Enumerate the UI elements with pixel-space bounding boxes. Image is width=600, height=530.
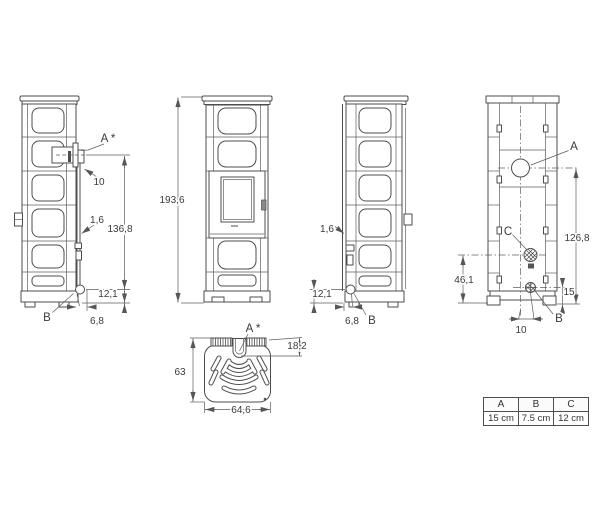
table-header-row: A B C <box>484 398 589 412</box>
dim-panel-thickness: 1,6 <box>90 215 104 226</box>
flue-outlet-label: A <box>570 141 578 153</box>
view-side-right: 1,6 12,1 6,8 B <box>310 96 412 327</box>
top-cap <box>20 96 79 101</box>
view-front: 193,6 <box>159 96 272 303</box>
b-connection <box>76 285 85 294</box>
view-top: A * 18,2 63 64,6 <box>174 323 307 416</box>
dim-total-height: 193,6 <box>159 195 184 206</box>
tile <box>359 245 391 268</box>
service-box <box>76 251 82 260</box>
dim-flue-depth: 18,2 <box>287 341 307 352</box>
flue-outlet-label: A * <box>246 323 261 335</box>
top-vent-grille <box>245 338 266 346</box>
dim-b-offset: 6,8 <box>345 316 359 327</box>
dim-b-height: 12,1 <box>98 289 118 300</box>
top-vent-grille <box>211 338 232 346</box>
base <box>21 291 78 302</box>
dim-c-height: 46,1 <box>454 275 474 286</box>
technical-drawing-canvas: A * 10 1,6 136,8 12,1 6,8 B <box>0 0 600 530</box>
dim-flue-height: 126,8 <box>564 233 589 244</box>
tile <box>218 241 256 269</box>
flue-outlet-label: A * <box>101 133 116 145</box>
service-box <box>346 245 354 251</box>
dim-b-offset: 6,8 <box>90 316 104 327</box>
door-glass <box>221 177 254 222</box>
top-cap <box>486 96 559 103</box>
dim-b-offset: 10 <box>515 325 527 336</box>
service-box <box>347 255 353 265</box>
service-box <box>528 264 534 269</box>
service-box <box>75 243 82 249</box>
b-connection <box>346 285 355 294</box>
bottom-vent-slot <box>359 276 391 286</box>
tile <box>359 108 391 133</box>
pin-mark <box>264 398 267 401</box>
view-rear: A C B 126,8 46,1 15 10 <box>454 96 590 336</box>
table-header-b: B <box>519 398 554 412</box>
tile <box>359 175 391 201</box>
dim-b-height: 12,1 <box>312 289 332 300</box>
table-value-a: 15 cm <box>484 412 519 426</box>
view-side-left: A * 10 1,6 136,8 12,1 6,8 B <box>15 96 133 327</box>
flue-outlet-a <box>512 159 530 177</box>
b-connection-label: B <box>368 315 376 327</box>
bottom-vent-slot <box>218 275 256 286</box>
tile <box>32 245 64 268</box>
tile <box>32 108 64 133</box>
stove-technical-drawing-page: A * 10 1,6 136,8 12,1 6,8 B <box>0 0 600 530</box>
door-latch <box>262 200 267 210</box>
b-connection-label: B <box>555 313 563 325</box>
door-handle <box>404 214 412 225</box>
dim-flue-height: 136,8 <box>107 224 132 235</box>
connection-size-table: A B C 15 cm 7.5 cm 12 cm <box>483 397 589 426</box>
tile <box>218 141 256 167</box>
table-value-b: 7.5 cm <box>519 412 554 426</box>
bottom-vent-slot <box>32 276 64 286</box>
dim-panel-thickness: 1,6 <box>320 224 334 235</box>
table-header-a: A <box>484 398 519 412</box>
dim-pipe-offset: 10 <box>93 177 105 188</box>
tile <box>218 108 256 134</box>
table-header-c: C <box>554 398 589 412</box>
top-cap <box>344 96 408 101</box>
top-cap <box>202 96 272 101</box>
dim-b-height: 15 <box>563 287 575 298</box>
air-intake-label: C <box>504 226 512 238</box>
b-connection-label: B <box>43 312 51 324</box>
dim-depth: 63 <box>174 367 186 378</box>
tile <box>32 209 64 237</box>
tile <box>32 175 64 201</box>
tile <box>359 141 391 167</box>
tile <box>359 209 391 237</box>
table-value-row: 15 cm 7.5 cm 12 cm <box>484 412 589 426</box>
dim-width: 64,6 <box>231 405 251 416</box>
table-value-c: 12 cm <box>554 412 589 426</box>
